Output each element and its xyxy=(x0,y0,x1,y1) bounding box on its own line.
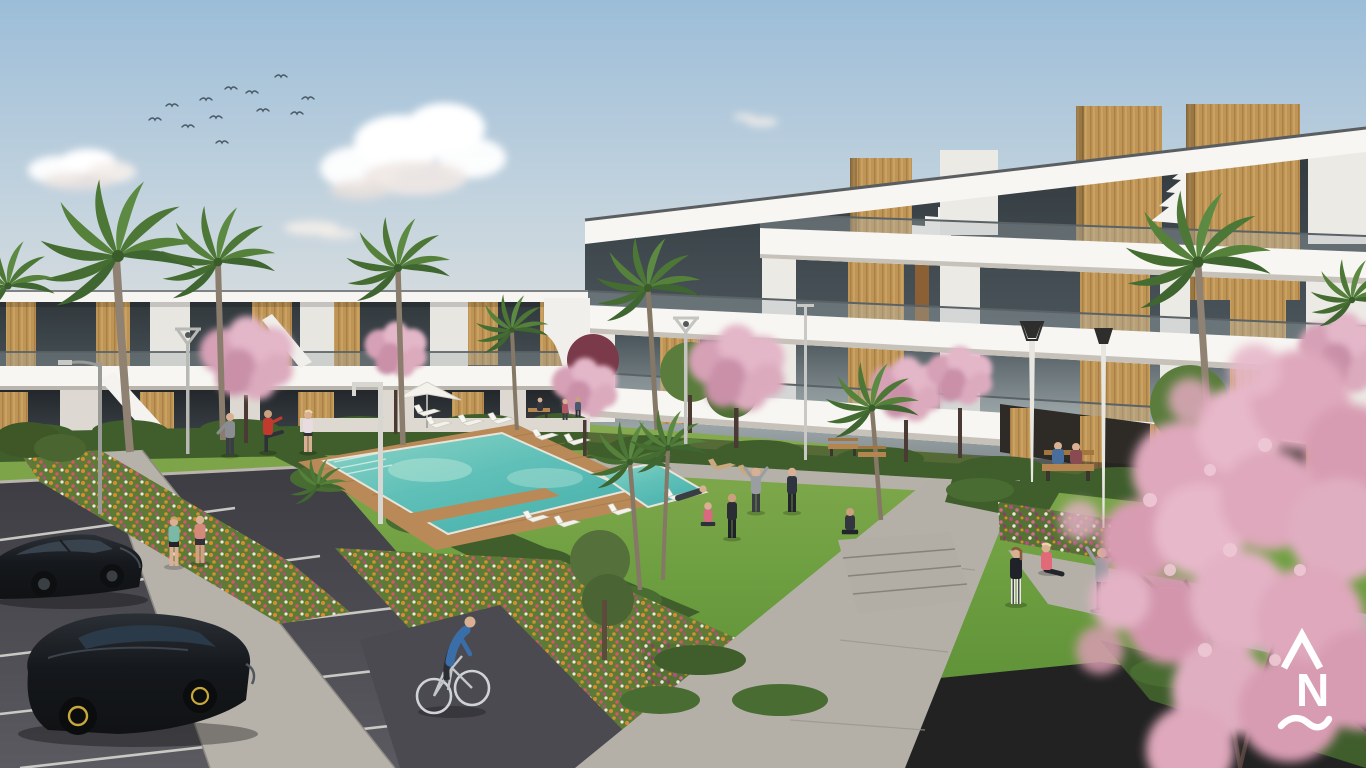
steps xyxy=(838,532,972,614)
scene-svg: N xyxy=(0,0,1366,768)
parked-hatchback xyxy=(18,613,258,747)
logo-letter: N xyxy=(1296,664,1329,716)
left-mid-slab xyxy=(0,366,588,388)
distant-seated-figure xyxy=(537,398,543,411)
render-canvas: N xyxy=(0,0,1366,768)
cyclist-head xyxy=(465,617,476,628)
